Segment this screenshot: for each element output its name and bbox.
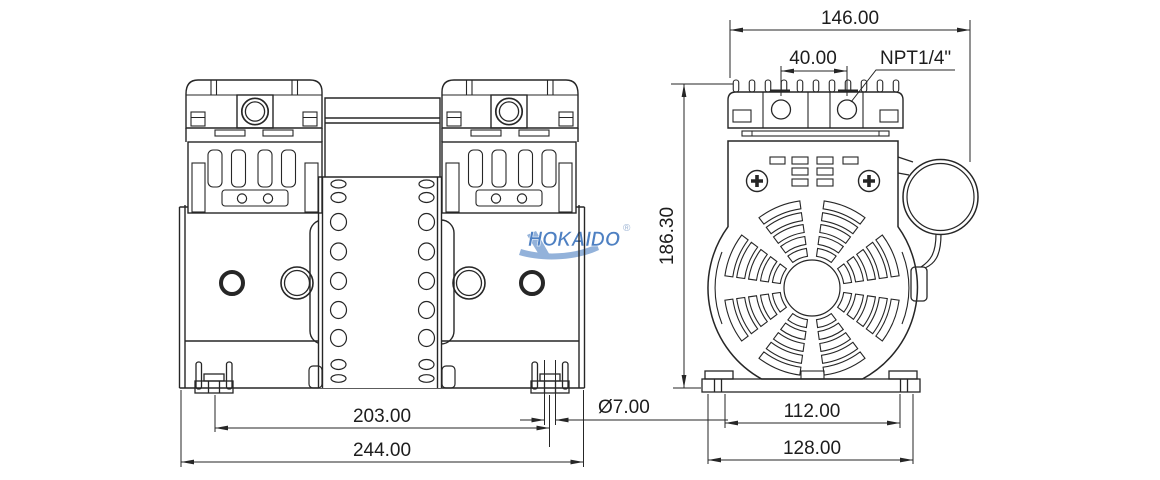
cover-screw-left	[747, 171, 768, 192]
svg-text:128.00: 128.00	[783, 438, 841, 459]
svg-text:244.00: 244.00	[353, 440, 411, 461]
dim-side-overall-width: 146.00	[730, 8, 970, 162]
cooling-fin	[813, 80, 819, 92]
cooling-fin	[893, 80, 899, 92]
registered-mark: ®	[623, 223, 631, 234]
center-column	[309, 98, 455, 388]
cooling-fin	[877, 80, 883, 92]
svg-text:186.30: 186.30	[657, 207, 678, 265]
hokaido-logo: HOKAIDO ®	[519, 223, 631, 259]
side-view	[702, 80, 978, 392]
cover-screw-right	[859, 171, 880, 192]
svg-text:40.00: 40.00	[789, 48, 837, 69]
svg-text:203.00: 203.00	[353, 406, 411, 427]
body-vents	[770, 157, 858, 186]
svg-text:146.00: 146.00	[821, 8, 879, 29]
capacitor-wire	[921, 234, 941, 268]
cylinder-head-right	[442, 80, 578, 213]
fan-grille	[725, 201, 899, 375]
cooling-fin	[749, 80, 755, 92]
front-view	[180, 80, 585, 393]
cooling-fin	[797, 80, 803, 92]
cooling-fin	[765, 80, 771, 92]
dim-port-spacing: 40.00	[781, 48, 847, 96]
wire-junction	[911, 267, 927, 301]
pump-dimensional-drawing: HOKAIDO ®	[0, 0, 1160, 480]
capacitor	[898, 157, 978, 235]
cooling-fin	[829, 80, 835, 92]
svg-text:Ø7.00: Ø7.00	[598, 397, 650, 418]
technical-drawing-canvas: HOKAIDO ®	[0, 0, 1160, 480]
cooling-fin	[733, 80, 739, 92]
side-base	[702, 371, 920, 392]
dim-side-foot-spacing: 112.00	[725, 394, 900, 428]
svg-text:NPT1/4": NPT1/4"	[880, 48, 951, 69]
side-head	[728, 80, 903, 136]
logo-text: HOKAIDO	[528, 228, 620, 251]
fan-grille-hub	[784, 260, 840, 316]
svg-text:112.00: 112.00	[784, 401, 841, 422]
cylinder-head-left	[186, 80, 322, 213]
shroud-seams	[715, 252, 909, 324]
port-thread-callout: NPT1/4"	[851, 48, 955, 102]
